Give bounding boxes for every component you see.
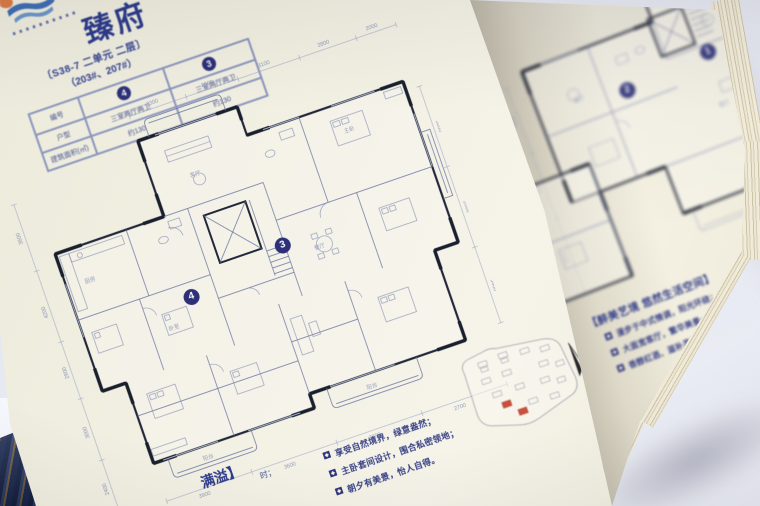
svg-text:3000: 3000 <box>82 426 92 440</box>
svg-text:3000: 3000 <box>434 120 444 134</box>
outer-walls <box>29 53 494 471</box>
bullet-icon <box>616 363 625 372</box>
bracket-close: 〕 <box>134 38 148 52</box>
bullet-icon <box>322 451 331 460</box>
svg-text:2400: 2400 <box>102 482 112 496</box>
svg-text:2600: 2600 <box>461 200 471 214</box>
bullet-icon <box>335 487 344 496</box>
svg-text:2800: 2800 <box>317 39 331 49</box>
bullet-icon <box>610 348 619 357</box>
svg-text:3400: 3400 <box>488 279 498 293</box>
brochure-photo: 臻府 〔S38-7 二单元 二层〕 （203#、207#） 编号 4 3 户型 … <box>0 0 760 506</box>
svg-text:2600: 2600 <box>201 79 215 89</box>
svg-text:3100: 3100 <box>257 60 271 70</box>
svg-text:2900: 2900 <box>62 366 72 380</box>
unit-3-badge: 3 <box>200 55 218 73</box>
svg-text:2000: 2000 <box>365 23 379 33</box>
bullet-icon <box>604 332 613 341</box>
caption-sub-fragment: 时； <box>258 466 277 482</box>
svg-text:3300: 3300 <box>146 98 160 108</box>
svg-text:4200: 4200 <box>41 305 51 319</box>
unit-4-badge: 4 <box>115 84 133 102</box>
svg-text:3600: 3600 <box>15 232 25 246</box>
bullet-icon <box>329 469 338 478</box>
